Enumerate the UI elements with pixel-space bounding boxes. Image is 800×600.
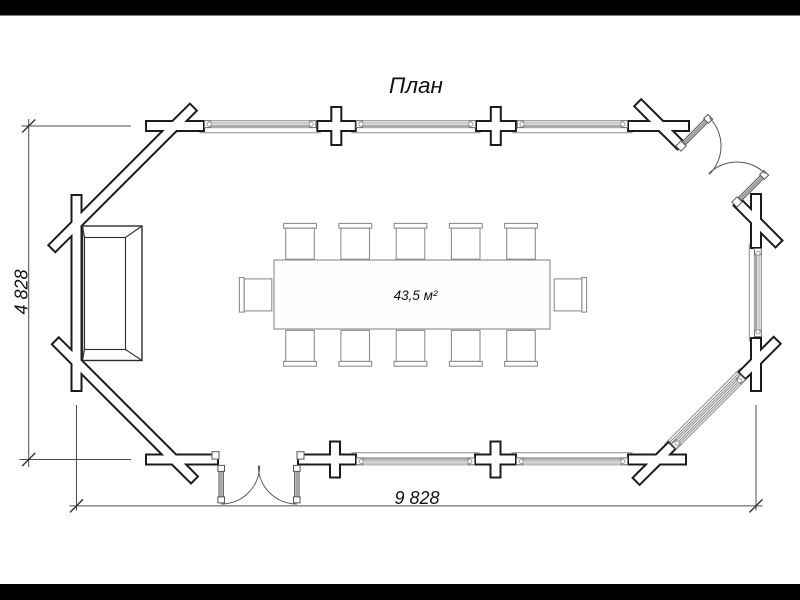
svg-text:4 828: 4 828 [12,269,32,314]
svg-text:43,5 м²: 43,5 м² [394,288,438,303]
svg-text:План: План [389,73,443,98]
svg-text:9 828: 9 828 [394,488,439,508]
